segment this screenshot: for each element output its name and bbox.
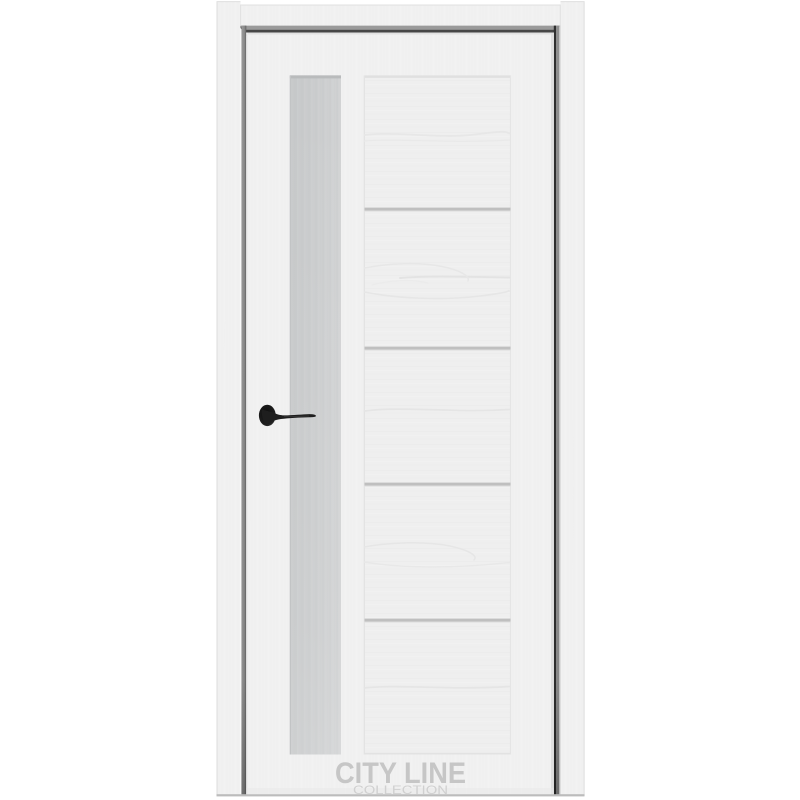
svg-text:COLLECTION: COLLECTION [353,783,448,797]
